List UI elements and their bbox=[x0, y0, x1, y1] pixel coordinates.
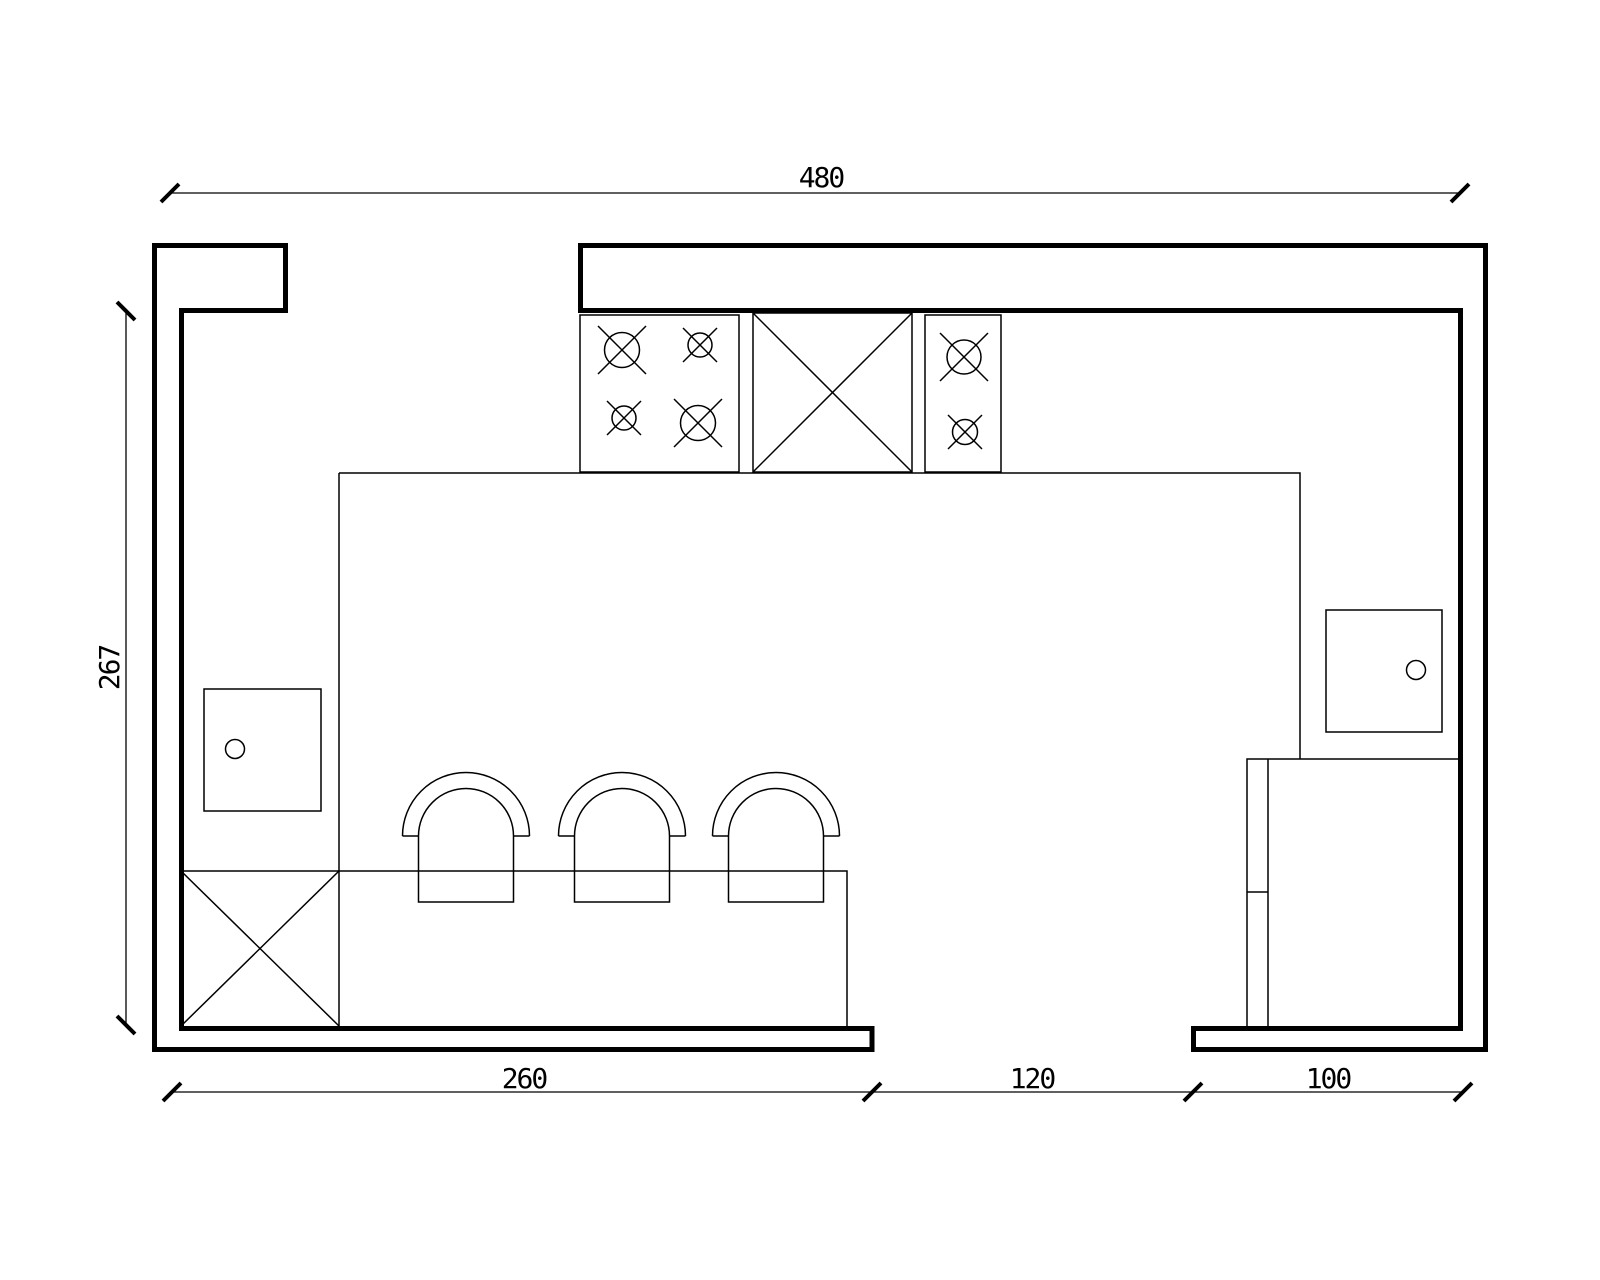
sink-left bbox=[204, 689, 321, 811]
crossed-cabinet-top bbox=[753, 313, 912, 472]
wall-top-right-and-bottom-right bbox=[581, 246, 1486, 1050]
crossed-cabinet-island bbox=[181, 871, 339, 1026]
floor-plan: 480 267 260 120 100 bbox=[0, 0, 1600, 1280]
walls bbox=[155, 246, 1486, 1050]
two-burner-cooktop bbox=[925, 315, 1001, 472]
dimension-label-bottom-left: 260 bbox=[502, 1062, 548, 1095]
bar-stool-3 bbox=[713, 773, 840, 903]
fridge-cabinet bbox=[1247, 759, 1460, 1026]
burner-small-bottom bbox=[948, 415, 982, 449]
dimension-label-left: 267 bbox=[93, 646, 126, 691]
dimension-top: 480 bbox=[161, 161, 1469, 202]
dimension-label-top: 480 bbox=[799, 161, 845, 194]
burner-large-top bbox=[940, 333, 988, 381]
sink-right bbox=[1326, 610, 1442, 732]
burner-small-bottom-left bbox=[607, 401, 641, 435]
bar-stool-2 bbox=[559, 773, 686, 903]
dimension-bottom: 260 120 100 bbox=[163, 1062, 1472, 1101]
burner-large-bottom-right bbox=[674, 399, 722, 447]
counters bbox=[181, 473, 1300, 1026]
dimension-left: 267 bbox=[93, 302, 135, 1034]
burner-large-top-left bbox=[598, 326, 646, 374]
burner-small-top-right bbox=[683, 328, 717, 362]
dimension-label-bottom-middle: 120 bbox=[1010, 1062, 1056, 1095]
wall-left-and-bottom-left bbox=[155, 246, 873, 1050]
faucet-circle bbox=[1407, 661, 1426, 680]
dimension-label-bottom-right: 100 bbox=[1306, 1062, 1352, 1095]
counter-inner-edge bbox=[339, 473, 1300, 1026]
faucet-circle bbox=[226, 740, 245, 759]
four-burner-cooktop bbox=[580, 315, 739, 472]
bar-stool-1 bbox=[403, 773, 530, 903]
